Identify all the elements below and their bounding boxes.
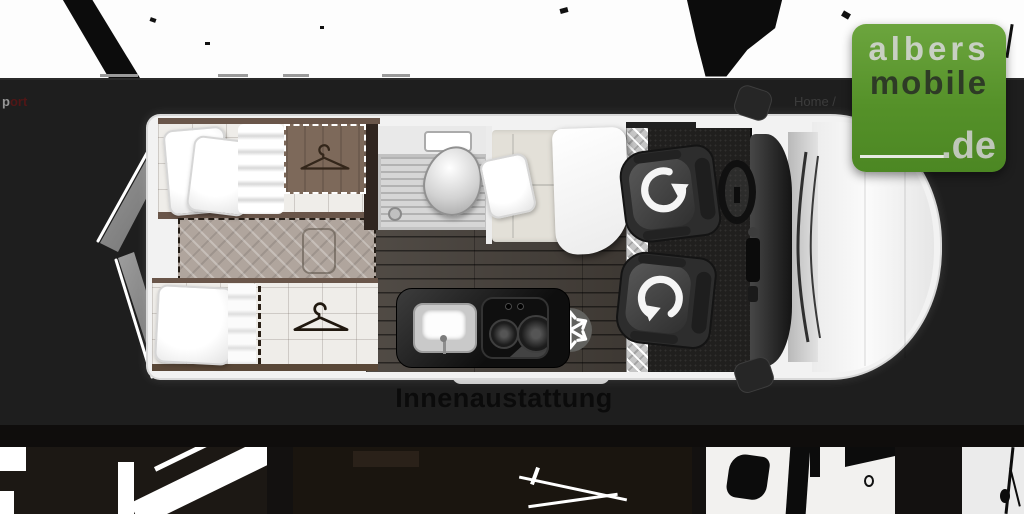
- burner-small: [489, 319, 519, 349]
- hanger-icon: [299, 144, 351, 174]
- table: [552, 127, 630, 256]
- speck: [559, 7, 568, 14]
- pillow: [154, 284, 234, 366]
- dark-shape: [1009, 467, 1021, 506]
- gallery-thumbnail[interactable]: [706, 447, 895, 514]
- kitchen-block: [396, 288, 570, 368]
- duvet: [238, 124, 284, 214]
- seat-backrest: [691, 271, 712, 334]
- highlight-shape: [528, 493, 618, 508]
- bathroom-wall: [364, 124, 378, 230]
- logo-line3-row: .de: [852, 100, 1006, 172]
- wardrobe: [284, 124, 366, 194]
- windshield: [788, 132, 818, 362]
- page: port Home /: [0, 0, 1024, 514]
- highlight-shape: [0, 447, 26, 471]
- bed-divider-dashed-line: [258, 286, 261, 364]
- speck: [205, 42, 210, 45]
- nav-fragment-red: ort: [10, 94, 27, 109]
- logo-line3: .de: [941, 125, 996, 168]
- center-filler-cushion: [178, 218, 376, 282]
- gray-dash: [218, 74, 248, 77]
- floorplan-caption: Innenaustattung: [0, 383, 1008, 414]
- cushion-hatch-outline: [302, 228, 336, 274]
- dark-detail: [353, 451, 419, 467]
- highlight-shape: [0, 491, 14, 514]
- hob-knob: [517, 303, 524, 310]
- bed-frame-wood: [152, 364, 378, 371]
- albersmobile-logo[interactable]: albers mobile .de: [852, 24, 1006, 172]
- gray-dash: [100, 74, 138, 77]
- logo-line2: mobile: [852, 66, 1006, 100]
- gallery-thumbnail[interactable]: [962, 447, 1024, 514]
- dark-diagonal-shape: [58, 0, 140, 78]
- dashboard: [750, 134, 792, 366]
- speck: [320, 26, 324, 29]
- gallery-thumbnail[interactable]: [0, 447, 267, 514]
- bottom-divider-band: [0, 425, 1024, 447]
- swivel-seat-rear: [613, 249, 718, 351]
- breadcrumb-home-link[interactable]: Home /: [794, 94, 836, 109]
- speck: [149, 17, 156, 23]
- seat-backrest: [694, 157, 716, 220]
- bed-frame-wood: [152, 278, 378, 283]
- dark-shape: [786, 447, 811, 514]
- dark-shape: [1000, 489, 1010, 503]
- dark-blob-shape: [680, 0, 796, 78]
- logo-underline: [860, 155, 946, 158]
- speck: [841, 10, 851, 19]
- speck: [1005, 24, 1013, 58]
- gray-dash: [283, 74, 309, 77]
- breadcrumb[interactable]: Home /: [794, 94, 836, 109]
- dark-shape: [810, 447, 820, 477]
- nav-text-fragment[interactable]: port: [2, 94, 27, 109]
- hob-knob: [505, 303, 512, 310]
- gallery-thumbnail[interactable]: [293, 447, 692, 514]
- kitchen-sink: [413, 303, 477, 353]
- hanger-icon: [292, 302, 350, 341]
- highlight-shape: [130, 447, 267, 514]
- dark-shape: [725, 452, 771, 501]
- gray-dash: [382, 74, 410, 77]
- faucet-base: [440, 335, 447, 342]
- swivel-seat-front: [617, 142, 723, 245]
- steering-wheel: [718, 160, 756, 224]
- dark-shape: [845, 447, 895, 467]
- logo-line1: albers: [852, 32, 1006, 66]
- duvet-fold: [228, 284, 256, 364]
- gallery-thumbnail-row: [0, 447, 1024, 514]
- burner-large: [517, 315, 549, 353]
- dark-mark: [864, 475, 874, 487]
- two-burner-hob: [481, 297, 549, 359]
- shower-drain: [388, 207, 402, 221]
- nav-fragment-light: p: [2, 94, 10, 109]
